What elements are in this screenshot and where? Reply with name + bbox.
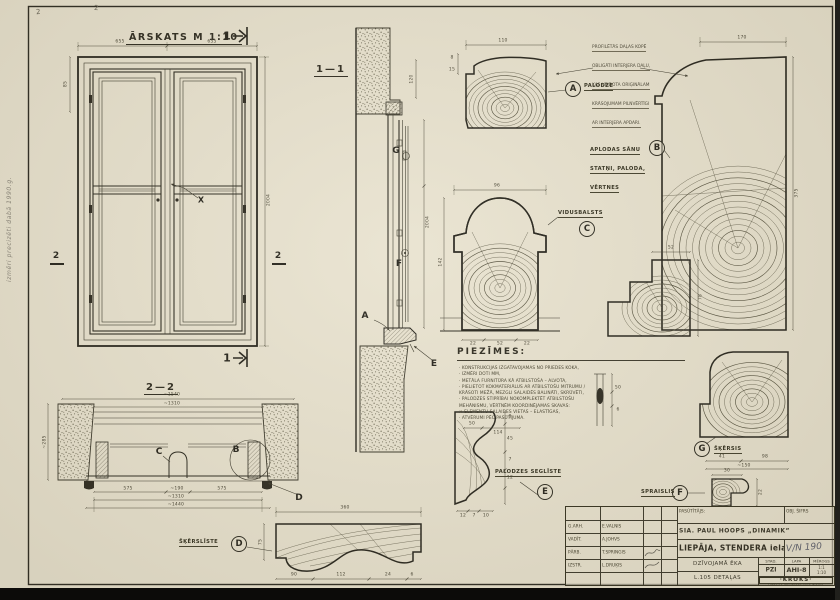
- dim-label: 655: [115, 40, 124, 45]
- tb-cell: [661, 520, 678, 534]
- stage-value: PZI: [766, 567, 777, 574]
- dim-label: 50: [615, 386, 621, 391]
- signature-mark: [643, 546, 661, 559]
- dim-label: 142: [439, 257, 444, 266]
- section-marker-f: F: [396, 259, 402, 269]
- detail-d-drawing: [247, 524, 421, 571]
- tb-name-cell: T.SPRINGIS: [600, 546, 644, 560]
- tb-address-cell: LIEPĀJA, STENDERA iela 11: [677, 539, 785, 558]
- dim-label: 6: [616, 408, 619, 413]
- signature-mark: [643, 559, 661, 572]
- dim-label: 45: [507, 437, 513, 442]
- dim-label: 7: [508, 458, 511, 463]
- cut-mark-2-left: 2: [53, 251, 59, 261]
- tb-name-cell: A.JOHVS: [600, 533, 644, 547]
- scale-value: 1:11:10: [817, 565, 826, 575]
- dim-label: 41: [719, 455, 725, 460]
- cut-mark-1-bottom: 1: [223, 352, 231, 365]
- dim-label: 50: [469, 422, 475, 427]
- notes-list: · KONSTRUKCIJAS IZGATAVOJAMAS NO PRIEDES…: [459, 366, 585, 423]
- detail-c-drawing: [440, 198, 560, 332]
- project-address: LIEPĀJA, STENDERA iela 11: [679, 544, 785, 553]
- dim-label: 120: [410, 74, 415, 83]
- obj-code-label: OBJ. ŠIFRS: [786, 510, 809, 515]
- dim-label: 90: [291, 573, 297, 578]
- sheet-value: AHI-8: [786, 566, 806, 574]
- tb-client-cell: SIA. PAUL HOOPS „DINAMIK”: [677, 523, 834, 540]
- dim-label: 52: [668, 246, 674, 251]
- detail-b-marker: B: [649, 140, 665, 156]
- tb-cell: [661, 559, 678, 573]
- obj-code-handwritten: V/N 190: [786, 542, 823, 554]
- dim-label: 2004: [267, 194, 272, 206]
- detail-f-drawing: [688, 478, 749, 506]
- firm-box: ·KROKS· LIEPĀJAS PROJEKTĒŠANAS BIROJS: [759, 577, 833, 584]
- notes-title: PIEZĪMES:: [457, 347, 526, 357]
- dim-label: 12: [507, 476, 513, 481]
- detail-g-drawing: [700, 352, 802, 444]
- detail-g-marker: G: [694, 441, 710, 457]
- dim-label: 170: [737, 36, 746, 41]
- notes-sketch: [594, 374, 606, 426]
- section-2-2: [58, 404, 298, 494]
- dim-label: 22: [470, 342, 476, 347]
- detail-b-label: APLODAS SĀNU STATŅI, PALODA, VĒRTNES: [590, 136, 645, 193]
- tb-cell: [600, 507, 644, 521]
- dim-label: 575: [123, 487, 132, 492]
- x-annotation: X: [198, 196, 204, 205]
- dim-label: 114: [493, 431, 502, 436]
- dim-label: 30: [724, 469, 730, 474]
- dim-label: 12: [460, 514, 466, 519]
- tb-firm-cell: ·KROKS· LIEPĀJAS PROJEKTĒŠANAS BIROJS: [758, 576, 834, 585]
- tb-cell: [661, 546, 678, 560]
- dim-label: ~1310: [168, 495, 184, 500]
- dim-label: ~1440: [168, 503, 184, 508]
- dim-label: ~1310: [164, 402, 180, 407]
- section-1-1-title: 1—1: [314, 64, 348, 77]
- drawing-sheet: ĀRSKATS M 1:10 1—1 2—2 1 1 2 2 X 2 2 izm…: [0, 0, 840, 600]
- tb-cell: [661, 507, 678, 521]
- detail-d-label: ŠĶĒRSLĪSTE: [179, 539, 218, 547]
- drawing-title: L.105 DETAĻAS: [694, 575, 741, 581]
- tb-role-cell: G.ARH.: [566, 520, 601, 534]
- tb-signature-cell: [643, 546, 662, 560]
- client-label: PASŪTĪTĀJS:: [679, 510, 705, 515]
- plan-marker-b: B: [233, 445, 240, 455]
- tb-name-cell: L.DRUĶIS: [600, 559, 644, 573]
- dim-label: 8: [450, 56, 453, 61]
- cut-mark-1-top: 1: [223, 30, 231, 43]
- tb-role-cell: VADĪT.: [566, 533, 601, 547]
- dim-label: 2004: [426, 216, 431, 228]
- dim-label: ~150: [737, 464, 750, 469]
- detail-c-marker: C: [579, 221, 595, 237]
- plan-marker-c: C: [156, 447, 163, 457]
- firm-subtitle: LIEPĀJAS PROJEKTĒŠANAS BIROJS: [760, 583, 832, 585]
- dim-label: 85: [64, 81, 69, 87]
- dim-label: 375: [795, 188, 800, 197]
- dim-label: ~190: [170, 487, 183, 492]
- tb-objcode-cell: V/N 190: [784, 539, 834, 558]
- stage-label: STAD.: [765, 558, 776, 563]
- detail-d-marker: D: [231, 536, 247, 552]
- tb-drawing-title-cell: L.105 DETAĻAS: [677, 571, 759, 585]
- detail-c-label: VIDUSBALSTS: [558, 210, 603, 218]
- tb-cell: [643, 507, 662, 521]
- detail-b-drawing: [647, 57, 829, 330]
- annotation-block: PROFILĒTĀS DAĻAS KOPĒ OBLIGĀTI INTERJERA…: [592, 33, 650, 128]
- dim-label: 575: [217, 487, 226, 492]
- dim-label: 98: [762, 455, 768, 460]
- tb-cell: [643, 533, 662, 547]
- dim-label: 52: [497, 342, 503, 347]
- tb-client-label-cell: PASŪTĪTĀJS:: [677, 507, 785, 524]
- detail-e-drawing: [455, 412, 538, 504]
- title-block: G.ARH. E.VALNIS VADĪT. A.JOHVS PĀRB. T.S…: [565, 506, 835, 586]
- tb-cell: [600, 572, 644, 585]
- dim-label: 112: [336, 573, 345, 578]
- scan-edge-right: [835, 0, 840, 600]
- dim-label: ~1540: [164, 393, 180, 398]
- section-marker-a: A: [362, 311, 369, 321]
- section-1-1: [356, 28, 432, 452]
- detail-e-label: PALODZES SEGLĪSTE: [495, 469, 561, 477]
- notes-rule: [457, 360, 685, 361]
- section-marker-g: G: [392, 146, 399, 156]
- sheet-label: LAPA: [792, 558, 801, 563]
- dim-label: 360: [340, 506, 349, 511]
- dim-label: 75: [259, 539, 264, 545]
- tb-signature-cell: [643, 559, 662, 573]
- scale-label: MĒROGS: [813, 558, 830, 563]
- dim-label: 24: [385, 573, 391, 578]
- plan-marker-d: D: [295, 493, 302, 503]
- tb-cell: [643, 572, 662, 585]
- detail-a-drawing: [460, 57, 550, 144]
- building-type: DZĪVOJAMĀ ĒKA: [693, 561, 742, 567]
- tb-role-cell: IZSTR.: [566, 559, 601, 573]
- corner-pencil-mark-1: 2: [36, 8, 41, 16]
- corner-pencil-mark-2: 2: [94, 4, 99, 12]
- dim-label: 7: [472, 514, 475, 519]
- tb-objcode-label-cell: OBJ. ŠIFRS: [784, 507, 834, 524]
- tb-name-cell: E.VALNIS: [600, 520, 644, 534]
- tb-cell: [661, 572, 678, 585]
- detail-e-marker: E: [537, 484, 553, 500]
- tb-cell: [661, 533, 678, 547]
- tb-building-cell: DZĪVOJAMĀ ĒKA: [677, 557, 759, 572]
- dim-label: 8: [508, 415, 511, 420]
- dim-label: 96: [494, 184, 500, 189]
- detail-b-plan-drawing: [608, 260, 702, 340]
- margin-handwritten-note: izmēri precizēti dabā 1990.g.: [6, 177, 13, 282]
- tb-role-cell: PĀRB.: [566, 546, 601, 560]
- tb-cell: [566, 507, 601, 521]
- dim-label: 6: [410, 573, 413, 578]
- hinge-marks: [89, 95, 246, 303]
- dim-label: 15: [449, 68, 455, 73]
- dim-label: 10: [483, 514, 489, 519]
- cut-mark-2-right: 2: [275, 251, 281, 261]
- dim-label: 655: [207, 40, 216, 45]
- detail-a-marker: A: [565, 81, 581, 97]
- dim-label: 110: [498, 39, 507, 44]
- detail-g-label: ŠĶĒRSIS: [714, 446, 742, 454]
- scan-edge-bottom: [0, 588, 840, 600]
- window-elevation: [50, 27, 286, 367]
- dim-label: 78: [699, 294, 704, 300]
- client-name: SIA. PAUL HOOPS „DINAMIK”: [679, 528, 790, 535]
- tb-cell: [643, 520, 662, 534]
- detail-f-label: SPRAISLIS: [641, 489, 675, 497]
- dim-label: 22: [524, 342, 530, 347]
- dim-label: ~285: [43, 435, 48, 448]
- section-marker-e: E: [431, 359, 437, 369]
- tb-cell: [566, 572, 601, 585]
- dim-label: 22: [759, 489, 764, 495]
